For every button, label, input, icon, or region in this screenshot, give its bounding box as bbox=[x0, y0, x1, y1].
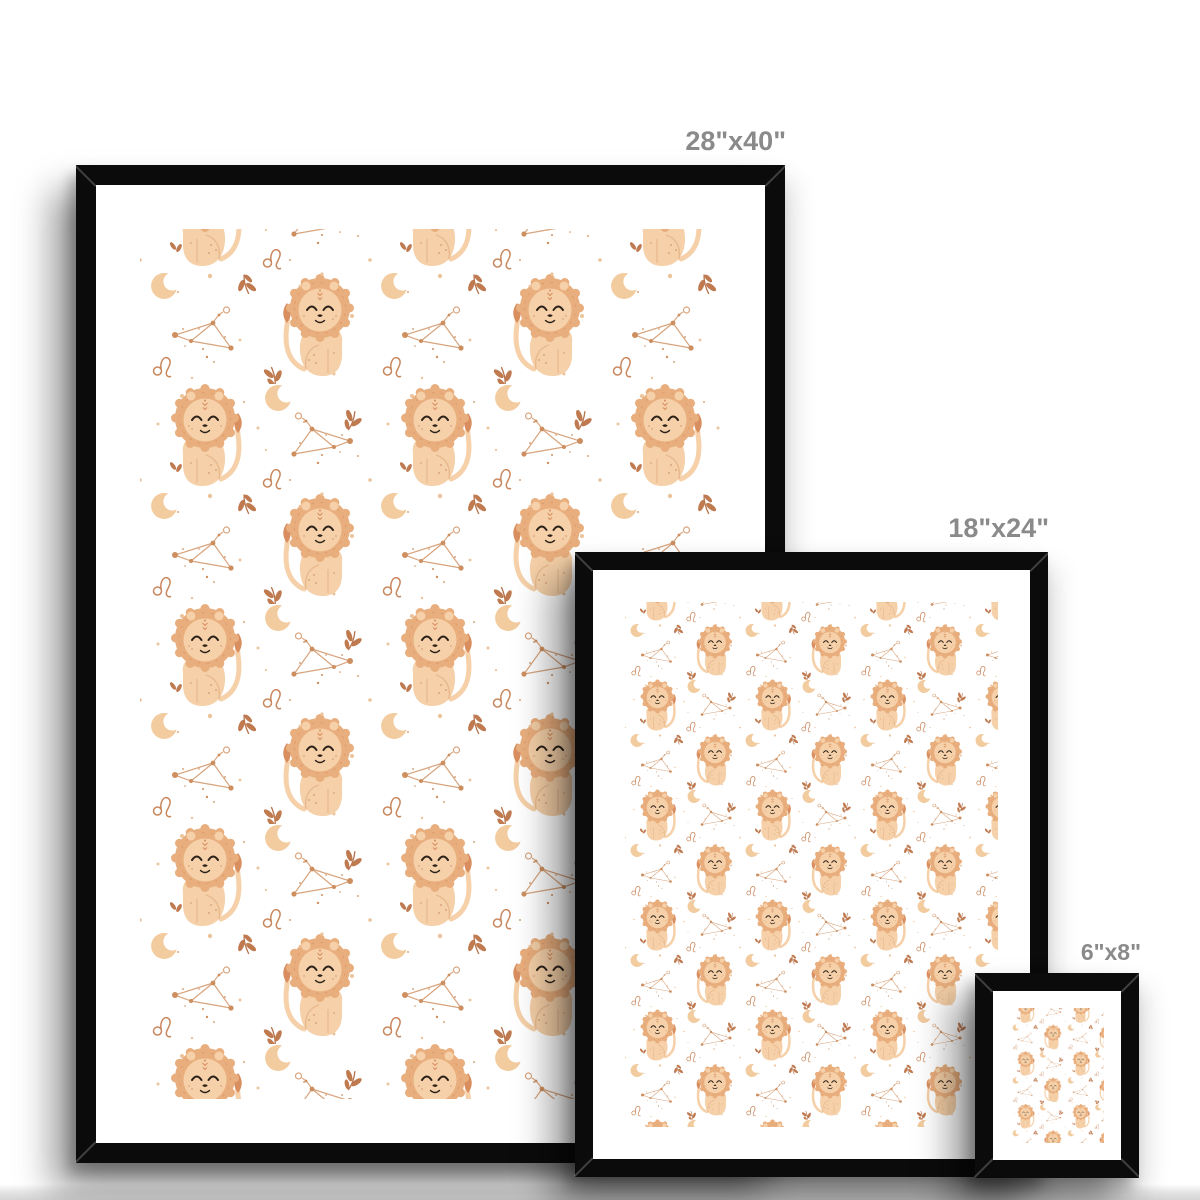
art-print-6x8 bbox=[1010, 1008, 1104, 1143]
miter-highlight bbox=[75, 1141, 97, 1163]
frame-6x8: 6"x8" bbox=[975, 973, 1139, 1178]
miter-highlight bbox=[75, 165, 97, 187]
floor-shadow bbox=[0, 1184, 1200, 1200]
miter-highlight bbox=[574, 1157, 594, 1177]
miter-highlight bbox=[574, 552, 594, 572]
miter-highlight bbox=[764, 165, 786, 187]
size-label-6x8: 6"x8" bbox=[1081, 941, 1141, 964]
miter-highlight bbox=[1030, 552, 1050, 572]
matte-18x24 bbox=[593, 570, 1030, 1159]
matte-6x8 bbox=[993, 991, 1121, 1160]
lion-pattern-small bbox=[1010, 1008, 1104, 1143]
size-label-18x24: 18"x24" bbox=[948, 515, 1049, 542]
miter-highlight bbox=[974, 973, 994, 993]
miter-highlight bbox=[1121, 973, 1141, 993]
miter-highlight bbox=[974, 1158, 994, 1178]
miter-highlight bbox=[1121, 1158, 1141, 1178]
lion-pattern-medium bbox=[625, 602, 998, 1127]
art-print-18x24 bbox=[625, 602, 998, 1127]
mockup-stage: 28"x40" 18"x24" bbox=[0, 0, 1200, 1200]
size-label-28x40: 28"x40" bbox=[685, 128, 786, 155]
